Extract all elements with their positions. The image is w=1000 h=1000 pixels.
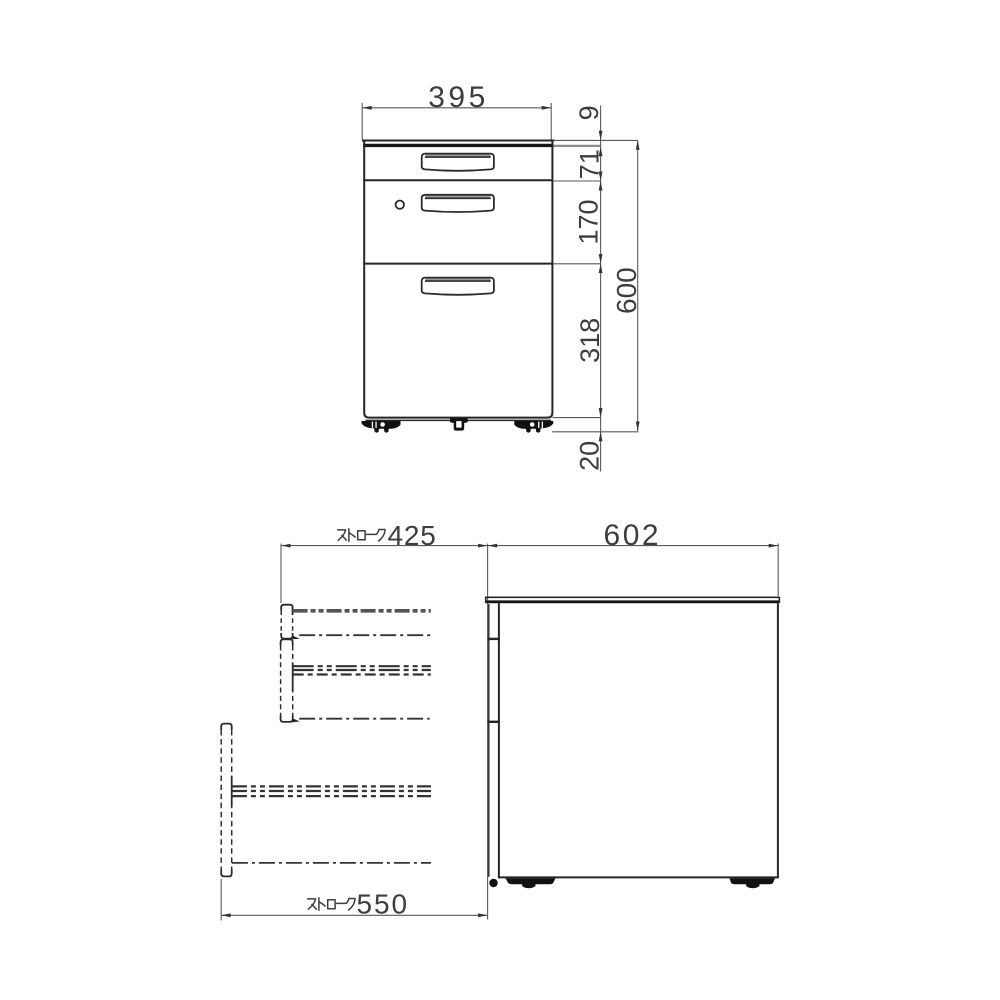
svg-text:395: 395 [428,81,489,114]
svg-text:170: 170 [573,199,603,244]
svg-text:318: 318 [575,318,605,363]
svg-text:20: 20 [574,441,604,471]
svg-text:425: 425 [388,520,437,551]
svg-text:9: 9 [574,105,604,120]
svg-text:71: 71 [574,149,604,179]
svg-text:600: 600 [611,267,642,314]
svg-text:550: 550 [357,889,409,920]
svg-text:602: 602 [604,519,662,552]
